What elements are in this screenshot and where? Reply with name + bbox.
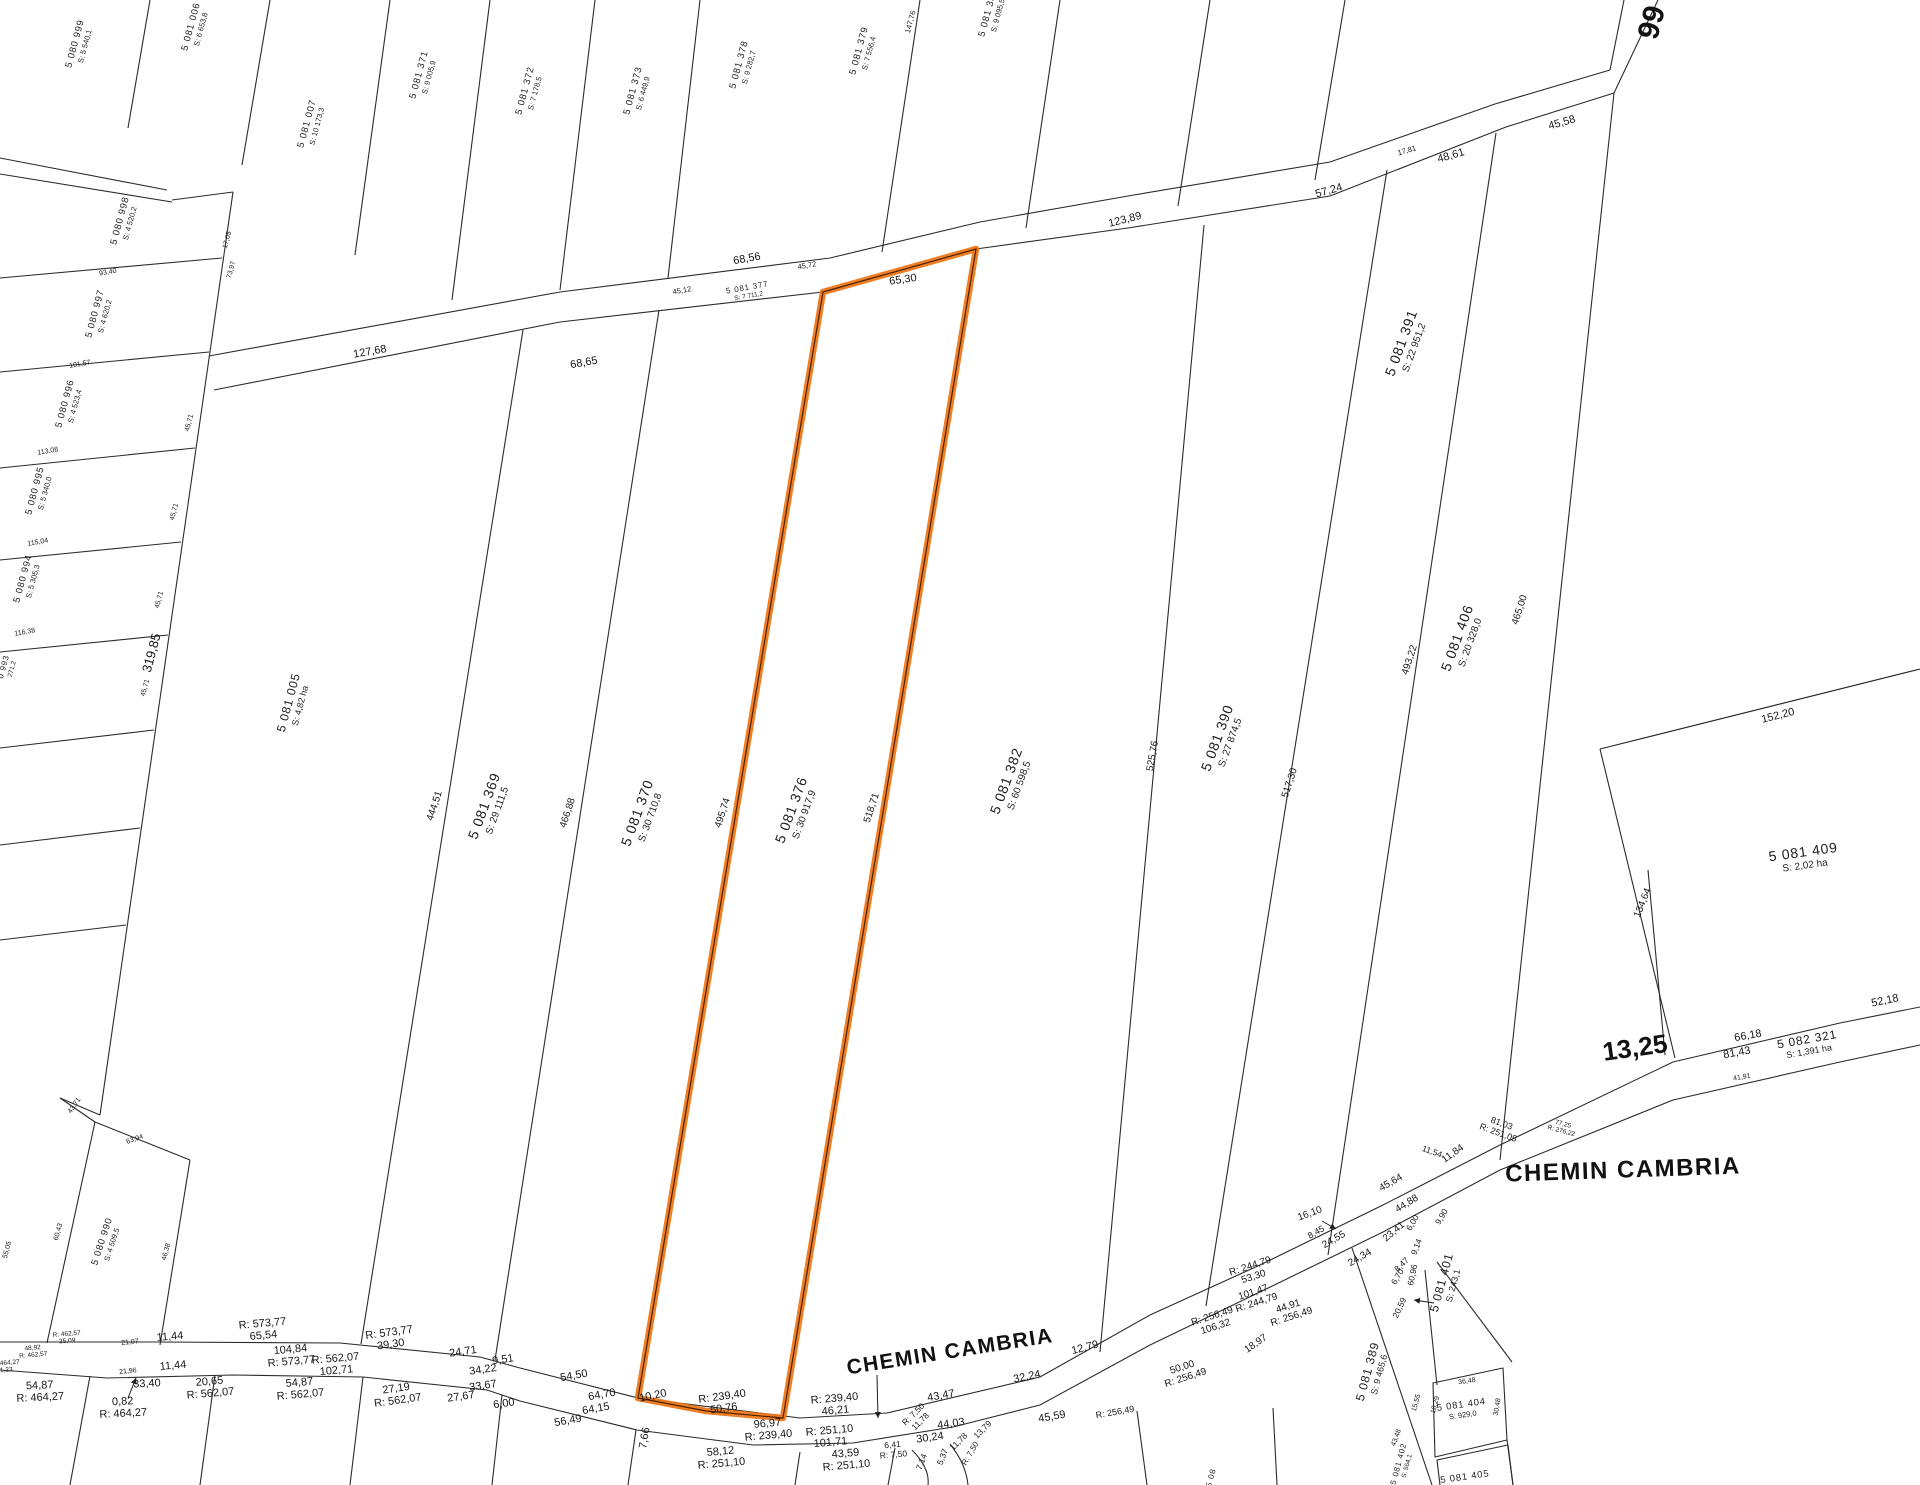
measurement-line2: 65,54 bbox=[249, 1329, 277, 1344]
measurement-line2: 1,23 bbox=[0, 1366, 13, 1374]
measurement-label: 11,44 bbox=[156, 1330, 184, 1345]
boundary-line bbox=[242, 0, 270, 165]
measurement-pair-label: 104,84R: 573,77 bbox=[266, 1342, 316, 1371]
boundary-line bbox=[1100, 225, 1204, 1352]
boundary-line bbox=[0, 828, 140, 845]
measurement-label: 21,07 bbox=[121, 1338, 139, 1347]
measurement-line2: R: 464,27 bbox=[16, 1391, 64, 1406]
measurement-label: 11,44 bbox=[159, 1359, 187, 1374]
measurement-pair-label: 54,87R: 464,27 bbox=[16, 1378, 65, 1405]
boundary-line bbox=[1315, 0, 1345, 180]
measurement-label: 33,40 bbox=[133, 1377, 161, 1391]
boundary-line bbox=[1500, 93, 1614, 1160]
boundary-line bbox=[882, 0, 920, 252]
boundary-line bbox=[1600, 669, 1920, 749]
measurement-pair-label: 48,92R: 462,57 bbox=[18, 1344, 47, 1361]
boundary-line bbox=[209, 70, 1610, 356]
boundary-line bbox=[128, 0, 150, 128]
measurement-line2: 46,21 bbox=[821, 1404, 849, 1419]
measurement-pair-label: R: 462,5725,09 bbox=[52, 1330, 81, 1347]
boundary-line bbox=[0, 635, 168, 652]
measurement-label: 21,96 bbox=[119, 1367, 137, 1376]
boundary-line bbox=[795, 1452, 800, 1485]
parcel-boundaries bbox=[0, 0, 1920, 1485]
boundary-line bbox=[0, 925, 126, 940]
boundary-line bbox=[1328, 133, 1496, 1255]
parcel-lines-layer bbox=[0, 0, 1920, 1485]
boundary-line bbox=[452, 0, 490, 300]
measurement-line2: R: 464,27 bbox=[99, 1407, 147, 1422]
boundary-line bbox=[1026, 0, 1060, 228]
boundary-line bbox=[560, 0, 595, 290]
measurement-pair-label: R: 239,4046,21 bbox=[810, 1391, 860, 1420]
measurement-line1: 0,82 bbox=[112, 1395, 134, 1408]
boundary-line bbox=[1273, 1408, 1277, 1485]
measurement-pair-label: R: 573,7765,54 bbox=[238, 1316, 288, 1345]
boundary-line bbox=[0, 730, 154, 748]
boundary-line bbox=[100, 192, 233, 1115]
measurement-pair-label: R: 464,271,23 bbox=[0, 1359, 21, 1376]
measurement-line2: 25,09 bbox=[59, 1337, 76, 1346]
measurement-pair-label: 0,82R: 464,27 bbox=[99, 1394, 148, 1421]
boundary-line bbox=[0, 174, 172, 202]
measurement-pair-label: 58,12R: 251,10 bbox=[696, 1444, 746, 1473]
boundary-line bbox=[350, 1377, 363, 1485]
cadastral-map: 5 080 999S: 5 540,15 081 006S: 6 653,85 … bbox=[0, 0, 1920, 1485]
boundary-line bbox=[70, 1376, 90, 1485]
boundary-line bbox=[0, 158, 167, 190]
boundary-line bbox=[628, 1430, 636, 1485]
boundary-line bbox=[0, 352, 209, 372]
boundary-line bbox=[1610, 0, 1624, 70]
boundary-line bbox=[1507, 1440, 1513, 1485]
leader-arrow bbox=[877, 1375, 878, 1418]
boundary-line bbox=[668, 0, 700, 278]
measurement-pair-label: 20,65R: 562,07 bbox=[185, 1374, 235, 1403]
boundary-line bbox=[355, 0, 390, 255]
boundary-line bbox=[361, 330, 523, 1344]
measurement-pair-label: 6,41R: 7,50 bbox=[879, 1439, 908, 1460]
highlighted-parcel-core-line bbox=[638, 249, 976, 1418]
measurement-pair-label: 54,87R: 562,07 bbox=[275, 1375, 325, 1404]
highlighted-parcel[interactable] bbox=[638, 249, 976, 1418]
measurement-pair-label: 43,59R: 251,10 bbox=[821, 1446, 871, 1475]
boundary-line bbox=[1137, 1411, 1147, 1485]
boundary-line bbox=[1178, 0, 1210, 206]
measurement-pair-label: 96,97R: 239,40 bbox=[743, 1416, 793, 1445]
boundary-line bbox=[172, 192, 233, 200]
boundary-line bbox=[0, 448, 195, 468]
